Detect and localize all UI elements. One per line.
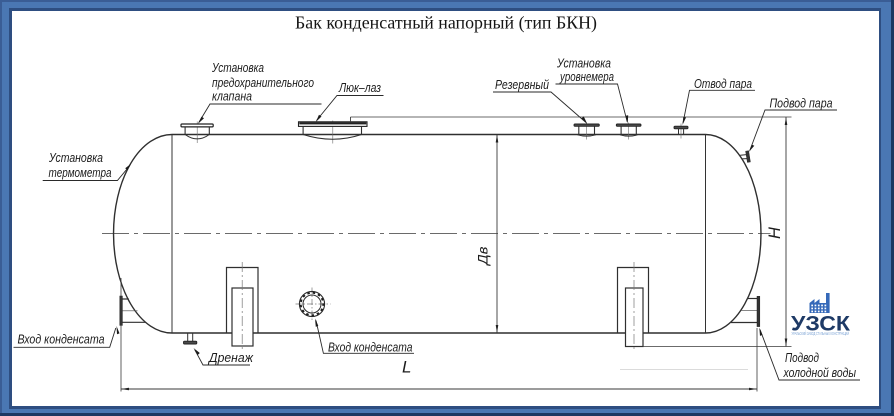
svg-text:Дв: Дв — [476, 247, 491, 267]
svg-text:Бак конденсатный напорный (тип: Бак конденсатный напорный (тип БКН) — [295, 13, 597, 33]
svg-text:Установка: Установка — [48, 150, 103, 165]
svg-text:Н: Н — [766, 227, 784, 239]
svg-text:Отвод пара: Отвод пара — [694, 76, 752, 91]
svg-text:Вход конденсата: Вход конденсата — [18, 332, 105, 347]
svg-text:Вход конденсата: Вход конденсата — [328, 340, 413, 355]
svg-text:Подвод: Подвод — [785, 350, 819, 365]
svg-text:Установка: Установка — [211, 60, 264, 75]
svg-text:L: L — [402, 358, 411, 377]
svg-text:холодной воды: холодной воды — [783, 365, 857, 380]
svg-text:Подвод пара: Подвод пара — [770, 96, 833, 111]
svg-text:Дренаж: Дренаж — [207, 350, 254, 365]
svg-text:термометра: термометра — [49, 165, 112, 180]
svg-text:УРАЛЬСКИЙ ЗАВОД СТАЛЬНЫХ КОНСТ: УРАЛЬСКИЙ ЗАВОД СТАЛЬНЫХ КОНСТРУКЦИЙ — [792, 331, 850, 336]
svg-text:клапана: клапана — [212, 89, 252, 104]
svg-text:Люк–лаз: Люк–лаз — [338, 80, 381, 95]
svg-text:уровнемера: уровнемера — [559, 69, 614, 84]
svg-text:Резервный: Резервный — [495, 77, 549, 92]
